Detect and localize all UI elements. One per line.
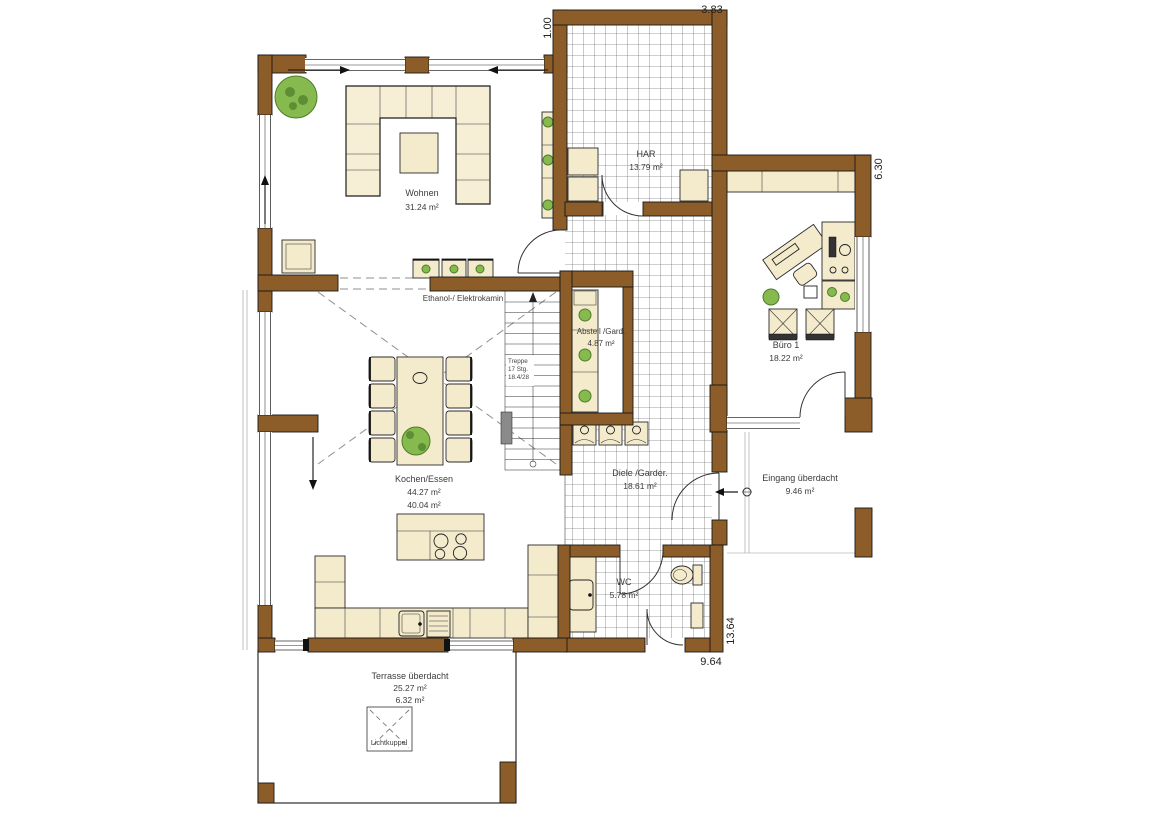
window <box>258 312 272 415</box>
stair-note-line1: Treppe <box>508 358 528 365</box>
window <box>448 640 513 651</box>
label-terrasse: Terrasse überdacht <box>371 671 449 681</box>
wardrobe-units <box>573 422 648 445</box>
office-furniture <box>727 171 855 340</box>
window <box>258 432 272 605</box>
stair-note-line3: 18.4/28 <box>508 374 530 381</box>
kitchen-dining-furniture <box>315 357 558 638</box>
stair-note-line2: 17 Stg. <box>508 366 528 373</box>
table-plant <box>402 427 430 455</box>
area-buero: 18.22 m² <box>769 353 803 363</box>
sideboard <box>282 240 315 273</box>
label-wc: WC <box>617 577 632 587</box>
area2-kochen: 40.04 m² <box>407 500 441 510</box>
label-lichtkuppel: Lichtkuppel <box>371 738 408 747</box>
wc-shelf <box>691 603 703 628</box>
office-door <box>800 372 845 417</box>
corner-plant <box>275 76 317 118</box>
office-plant <box>763 289 779 305</box>
kitchen-counter-bottom <box>315 608 528 638</box>
window <box>727 416 800 430</box>
dim-bottom: 9.64 <box>700 656 721 668</box>
label-eingang: Eingang überdacht <box>762 473 838 483</box>
area-kochen: 44.27 m² <box>407 487 441 497</box>
area-terrasse: 25.27 m² <box>393 683 427 693</box>
vanity <box>566 556 596 632</box>
area-abstell: 4.87 m² <box>587 339 614 348</box>
area2-terrasse: 6.32 m² <box>396 695 425 705</box>
stair-rail-post <box>501 412 512 444</box>
label-har: HAR <box>636 149 656 159</box>
label-abstell: Abstell /Gard. <box>577 327 625 336</box>
dim-top: 3.83 <box>701 4 722 16</box>
toilet <box>671 565 702 585</box>
coffee-table <box>400 133 438 173</box>
office-sideboard <box>727 171 855 192</box>
stairs: Treppe 17 Stg. 18.4/28 <box>501 291 560 470</box>
area-diele: 18.61 m² <box>623 481 657 491</box>
dim-right-upper: 6.30 <box>873 158 885 179</box>
visitor-chairs <box>769 309 834 340</box>
label-kochen: Kochen/Essen <box>395 474 453 484</box>
kitchen-island <box>397 514 484 560</box>
terrace-pillar-left <box>258 783 274 803</box>
living-room-door <box>518 230 561 273</box>
abstell-furniture <box>572 290 598 412</box>
dim-top-inner: 1.00 <box>542 17 554 38</box>
fireplace-wall <box>430 277 563 291</box>
area-wohnen: 31.24 m² <box>405 202 439 212</box>
living-room-furniture <box>275 76 554 273</box>
label-wohnen: Wohnen <box>405 188 438 198</box>
slide-arrow-down <box>309 480 317 490</box>
window <box>855 237 871 332</box>
kitchen-counter-right <box>528 545 558 638</box>
area-har: 13.79 m² <box>629 162 663 172</box>
label-diele: Diele /Garder. <box>612 468 668 478</box>
stair-direction-arrow <box>529 292 537 302</box>
terrace-pillar-right <box>500 762 516 803</box>
fireplace-planters <box>413 259 493 278</box>
label-kamin: Ethanol-/ Elektrokamin <box>423 294 503 303</box>
area-eingang: 9.46 m² <box>786 486 815 496</box>
monitor <box>829 237 836 257</box>
label-buero: Büro 1 <box>773 340 800 350</box>
dim-right-lower: 13.64 <box>725 617 737 645</box>
office-cabinet <box>822 281 855 309</box>
floor-plan-canvas: Treppe 17 Stg. 18.4/28 <box>0 0 1150 820</box>
area-wc: 5.78 m² <box>610 590 639 600</box>
floor-plan: Treppe 17 Stg. 18.4/28 <box>0 0 1150 820</box>
